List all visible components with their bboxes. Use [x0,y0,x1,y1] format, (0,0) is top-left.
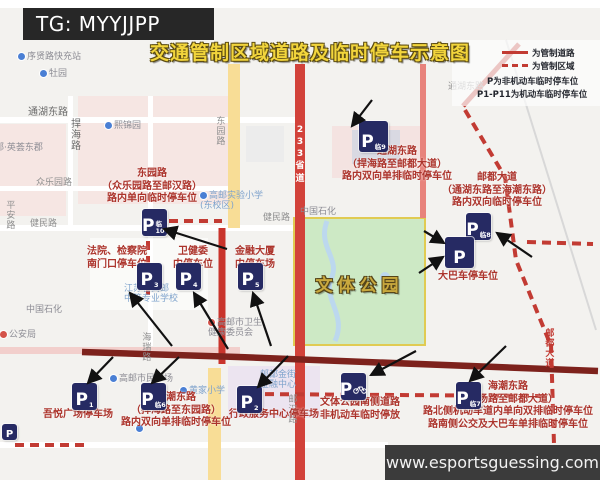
legend-label: 为管制区域 [532,62,575,72]
legend-row-control-zone: 为管制区域 [502,60,575,72]
p-icon-lin6: P临6 [141,383,166,410]
p-icon-lin8: P临8 [466,213,491,240]
p-icon-lin7: P临7 [456,382,481,409]
parking-number-label: 临10 [155,221,167,236]
dashed-red-line-swatch [502,64,528,67]
parking-p-glyph: P [76,392,88,410]
parking-p-glyph: P [242,272,254,290]
legend-label: 为管制道路 [532,49,575,59]
parking-p-glyph: P [141,392,153,410]
parking-number-label: 4 [193,282,198,291]
bicycle-icon [353,379,367,400]
p-icon-2: P2 [237,386,262,413]
parking-number-label: 临8 [480,232,491,241]
screenshot-root: 文体公园 序贤路快充站牡园通湖东路通湖东路捍海路东园路熙锦园南邮·英荟东郡众乐园… [0,0,600,480]
parking-p-glyph: P [340,382,352,400]
parking-p-glyph: P [180,272,192,290]
legend-label: P1-P11为机动车临时停车位 [477,90,587,100]
p-icon-small-base: P [2,424,17,440]
parking-p-glyph: P [456,391,468,409]
p-icon-bike: P [341,373,366,400]
parking-p-glyph: P [141,272,153,290]
tg-watermark-badge: TG: MYYJJPP [23,8,214,40]
parking-number-label: 1 [89,402,94,411]
parking-number-label: 5 [255,282,260,291]
legend-row-motor: P1-P11为机动车临时停车位 [477,88,587,100]
parking-p-glyph: P [361,134,373,152]
parking-number-label: 临6 [155,402,166,411]
parking-p-glyph: P [241,395,253,413]
p-icon-lin10: P临10 [142,209,167,236]
parking-number-label: 临9 [375,144,386,153]
parking-number-label: 临7 [470,401,481,410]
solid-red-line-swatch [502,51,528,54]
website-watermark: www.esportsguessing.com [385,445,600,480]
map-title: 交通管制区域道路及临时停车示意图 [150,38,470,65]
p-icon-4: P4 [176,263,201,290]
p-icon-bus: P [445,237,474,268]
legend-row-control-road: 为管制道路 [502,47,575,59]
parking-p-glyph: P [453,250,465,268]
legend-label: P为非机动车临时停车位 [487,77,578,87]
p-icon-lin9: P临9 [359,121,388,152]
parking-number-label: 3 [154,282,159,291]
legend-row-nonmotor: P为非机动车临时停车位 [487,75,578,87]
parking-p-glyph: P [6,430,13,441]
p-icon-1: P1 [72,383,97,410]
parking-number-label: 2 [254,405,259,414]
p-icon-3: P3 [137,263,162,290]
parking-p-glyph: P [142,218,154,236]
p-icon-5: P5 [238,263,263,290]
